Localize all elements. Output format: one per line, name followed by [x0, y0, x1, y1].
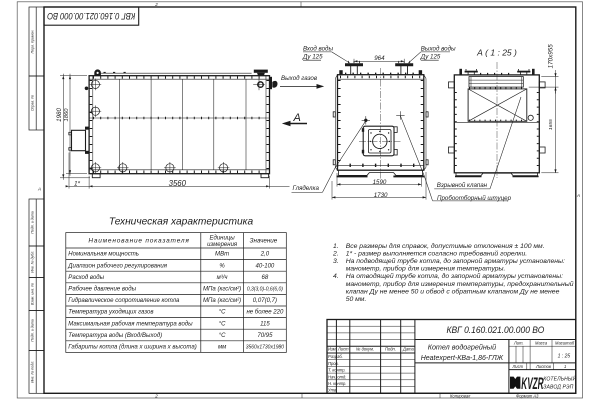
svg-text:Значение: Значение [250, 238, 278, 245]
svg-text:Вход воды: Вход воды [303, 46, 333, 53]
svg-text:Масштаб: Масштаб [555, 340, 575, 345]
svg-text:Габариты котла (длина х ширина: Габариты котла (длина х ширина х высота) [68, 345, 196, 351]
svg-text:Н. контр.: Н. контр. [328, 381, 346, 386]
svg-text:°С: °С [219, 333, 226, 339]
svg-text:КВГ 0.160.021.00.000 ВО: КВГ 0.160.021.00.000 ВО [447, 324, 545, 334]
svg-text:манометр, прибор для измерения: манометр, прибор для измерения температу… [346, 280, 574, 288]
svg-text:170х955: 170х955 [548, 44, 555, 69]
svg-text:Подп.: Подп. [385, 347, 396, 352]
svg-text:3560х1730х1980: 3560х1730х1980 [246, 345, 285, 351]
svg-text:Единицы: Единицы [210, 236, 236, 242]
svg-text:1980: 1980 [56, 108, 63, 122]
svg-text:Максимальная рабочая температу: Максимальная рабочая температура воды [68, 321, 193, 327]
svg-text:манометр, прибор для измерения: манометр, прибор для измерения температу… [346, 265, 506, 273]
svg-text:Heatexpert-КВа-1,86-ГЛЖ: Heatexpert-КВа-1,86-ГЛЖ [421, 355, 504, 362]
svg-text:%: % [219, 263, 225, 269]
svg-text:Диапазон рабочего регулировани: Диапазон рабочего регулирования [67, 263, 167, 269]
svg-text:КВГ 0.160.021.00.000 ВО: КВГ 0.160.021.00.000 ВО [47, 11, 136, 22]
svg-text:Перв. примен.: Перв. примен. [31, 30, 35, 54]
svg-text:1590: 1590 [373, 179, 387, 186]
svg-text:А: А [293, 112, 301, 124]
svg-text:Выход воды: Выход воды [421, 45, 456, 52]
svg-text:Лит.: Лит. [513, 340, 524, 345]
svg-text:Лист: Лист [512, 364, 524, 369]
svg-text:Т. контр.: Т. контр. [328, 368, 346, 373]
svg-text:Изм.: Изм. [328, 347, 337, 352]
svg-text:А: А [576, 193, 580, 198]
svg-text:Рабочее давление воды: Рабочее давление воды [68, 287, 136, 293]
svg-text:МВт: МВт [215, 252, 229, 258]
svg-text:Подп. и дата: Подп. и дата [31, 211, 35, 234]
svg-text:1730: 1730 [374, 192, 388, 199]
svg-text:Инв. № подл.: Инв. № подл. [31, 361, 35, 383]
svg-text:2: 2 [154, 394, 158, 399]
svg-text:Гидравлическое сопротивление к: Гидравлическое сопротивление котла [68, 298, 180, 304]
svg-text:Справ. №: Справ. № [31, 95, 35, 111]
svg-text:1655: 1655 [548, 119, 554, 130]
svg-text:Масса: Масса [535, 340, 548, 345]
svg-text:Формат А3: Формат А3 [516, 393, 539, 398]
svg-text:А ( 1 : 25 ): А ( 1 : 25 ) [476, 48, 517, 58]
svg-text:2.: 2. [332, 250, 339, 257]
svg-text:МПа (кгс/см²): МПа (кгс/см²) [203, 298, 241, 304]
svg-text:Все размеры для справок, допус: Все размеры для справок, допустимые откл… [346, 242, 545, 250]
svg-text:м³/ч: м³/ч [217, 275, 229, 281]
svg-text:А: А [37, 187, 41, 192]
svg-text:Взрывной клапан: Взрывной клапан [437, 182, 488, 189]
svg-text:Ду 125: Ду 125 [302, 54, 323, 61]
svg-text:измерения: измерения [207, 242, 238, 248]
svg-text:°С: °С [219, 321, 226, 327]
svg-text:1.: 1. [333, 243, 339, 250]
svg-text:На подводящей трубе котла, до: На подводящей трубе котла, до запорной а… [346, 257, 565, 265]
svg-text:Номинальная мощность: Номинальная мощность [68, 252, 139, 258]
svg-text:Расход воды: Расход воды [68, 275, 104, 281]
svg-text:МПа (кгс/см²): МПа (кгс/см²) [203, 287, 241, 293]
svg-text:не более 220: не более 220 [246, 310, 284, 316]
svg-text:Дата: Дата [402, 347, 415, 352]
svg-text:1860: 1860 [64, 108, 70, 122]
svg-text:4.: 4. [333, 273, 339, 280]
svg-text:Температура воды (Вход/Выход): Температура воды (Вход/Выход) [68, 333, 162, 339]
svg-text:50 мм.: 50 мм. [346, 296, 367, 303]
svg-text:0,3(3,0)-0,6(6,0): 0,3(3,0)-0,6(6,0) [247, 287, 283, 293]
svg-text:Копировал: Копировал [450, 393, 471, 398]
svg-text:Котел водогрейный: Котел водогрейный [428, 342, 496, 351]
svg-text:Наименование показателя: Наименование показателя [88, 238, 189, 245]
svg-text:Листов: Листов [535, 364, 552, 369]
svg-text:№ докум.: № докум. [356, 347, 374, 352]
svg-text:KVZR: KVZR [521, 374, 543, 393]
svg-text:Нач. отд.: Нач. отд. [328, 374, 346, 379]
svg-text:1: 1 [564, 364, 566, 369]
svg-text:3.: 3. [333, 258, 339, 265]
svg-text:3560: 3560 [169, 179, 187, 188]
svg-text:На отводящей трубе котла, до з: На отводящей трубе котла, до запорной ар… [346, 272, 563, 280]
svg-text:Разраб.: Разраб. [328, 354, 343, 359]
svg-text:1 : 25: 1 : 25 [558, 354, 571, 360]
svg-text:0,07(0,7): 0,07(0,7) [253, 298, 277, 304]
svg-text:°С: °С [219, 310, 226, 316]
svg-text:Подп. и дата: Подп. и дата [31, 319, 35, 342]
svg-text:964: 964 [374, 55, 385, 62]
svg-text:Выход газов: Выход газов [281, 75, 318, 82]
svg-text:Техническая характеристика: Техническая характеристика [109, 217, 254, 228]
svg-text:Взам. инв. №: Взам. инв. № [31, 283, 35, 305]
svg-text:Утв.: Утв. [328, 388, 337, 393]
svg-text:115: 115 [260, 321, 270, 327]
svg-text:68: 68 [262, 275, 269, 281]
svg-text:Гляделка: Гляделка [293, 185, 320, 192]
svg-text:1* - размер выполняется соглас: 1* - размер выполняется согласно требова… [346, 249, 528, 257]
svg-text:1*: 1* [74, 181, 81, 188]
svg-text:40-100: 40-100 [255, 263, 274, 269]
svg-text:Пров.: Пров. [328, 361, 339, 366]
svg-text:Температура уходящих газов: Температура уходящих газов [68, 310, 153, 316]
svg-text:Ду 125: Ду 125 [420, 54, 441, 61]
svg-text:Инв. № дубл.: Инв. № дубл. [31, 251, 35, 273]
svg-text:мм: мм [218, 345, 227, 351]
svg-text:КОТЕЛЬНЫЙ: КОТЕЛЬНЫЙ [543, 375, 576, 383]
svg-text:ЗАВОД РЭП: ЗАВОД РЭП [543, 385, 573, 391]
svg-text:70/95: 70/95 [257, 333, 273, 339]
svg-text:клапан Ду не менее 50 и обвод: клапан Ду не менее 50 и обвод с обратным… [346, 287, 560, 295]
svg-text:Лист: Лист [337, 347, 349, 352]
svg-text:2: 2 [154, 2, 158, 7]
svg-text:2,0: 2,0 [260, 252, 270, 258]
